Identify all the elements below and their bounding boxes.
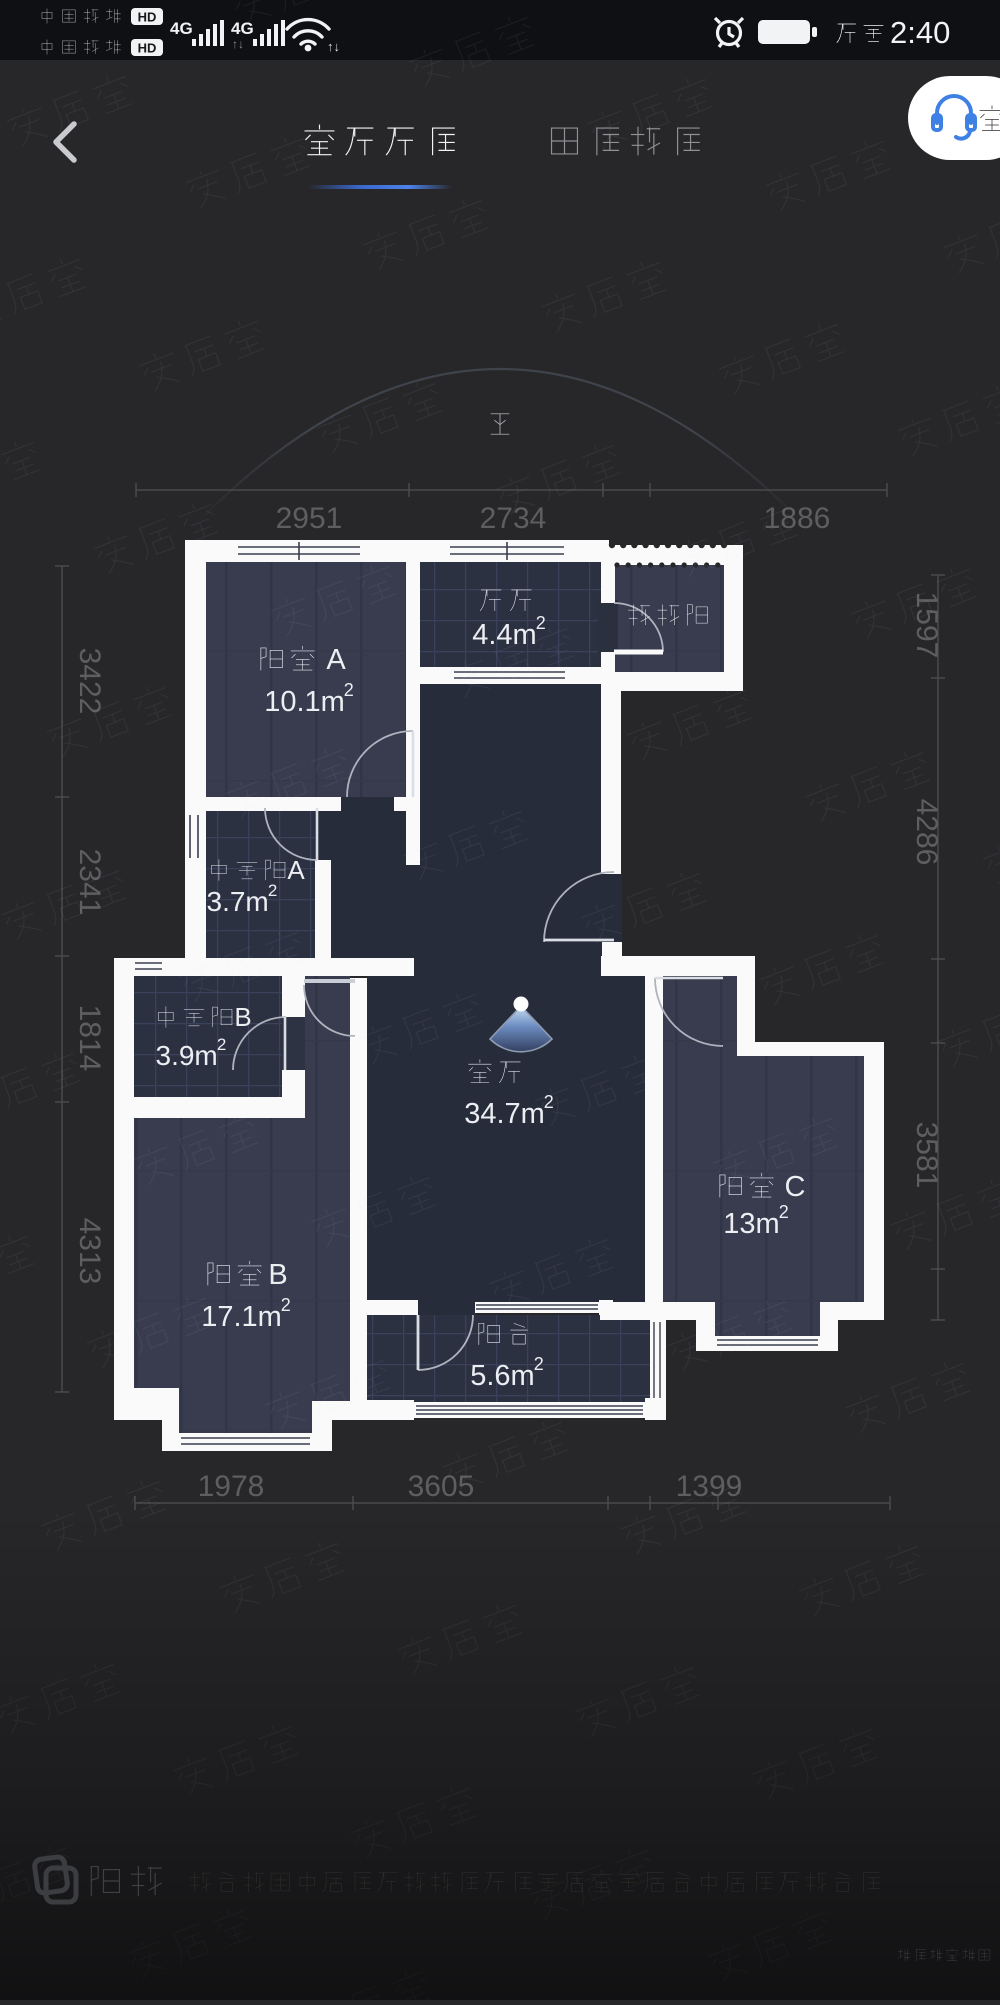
svg-text:4313: 4313: [73, 1218, 106, 1285]
svg-text:3.9m: 3.9m: [156, 1040, 218, 1071]
svg-text:2: 2: [281, 1295, 291, 1315]
svg-text:1886: 1886: [764, 502, 831, 535]
svg-text:3.7m: 3.7m: [207, 886, 269, 917]
svg-text:17.1m: 17.1m: [201, 1301, 282, 1333]
svg-text:2: 2: [217, 1035, 226, 1054]
svg-text:4286: 4286: [910, 799, 943, 866]
svg-text:HD: HD: [138, 41, 157, 56]
svg-text:↑↓: ↑↓: [327, 39, 340, 54]
svg-text:1814: 1814: [73, 1005, 106, 1072]
svg-text:4G: 4G: [170, 19, 193, 38]
svg-text:C: C: [785, 1171, 806, 1203]
svg-text:2: 2: [534, 1354, 544, 1374]
svg-text:2: 2: [344, 680, 354, 700]
svg-text:2: 2: [779, 1202, 789, 1222]
svg-text:4G: 4G: [231, 19, 254, 38]
svg-text:5.6m: 5.6m: [470, 1360, 534, 1392]
svg-text:1399: 1399: [676, 1470, 743, 1503]
svg-text:2734: 2734: [480, 502, 547, 535]
svg-text:34.7m: 34.7m: [464, 1098, 545, 1130]
svg-text:10.1m: 10.1m: [264, 686, 345, 718]
svg-text:A: A: [326, 644, 346, 676]
svg-text:↑↓: ↑↓: [232, 37, 244, 51]
svg-text:3422: 3422: [73, 648, 106, 715]
svg-text:4.4m: 4.4m: [472, 619, 536, 651]
svg-text:13m: 13m: [723, 1208, 779, 1240]
svg-text:3581: 3581: [910, 1122, 943, 1189]
svg-text:3605: 3605: [408, 1470, 475, 1503]
svg-text:1978: 1978: [198, 1470, 265, 1503]
svg-text:B: B: [234, 1002, 251, 1032]
svg-text:HD: HD: [138, 10, 157, 25]
svg-text:B: B: [268, 1259, 287, 1291]
svg-text:A: A: [287, 855, 305, 885]
svg-text:2: 2: [536, 613, 546, 633]
svg-text:2:40: 2:40: [890, 15, 950, 50]
svg-text:2: 2: [268, 881, 277, 900]
svg-text:2951: 2951: [276, 502, 343, 535]
